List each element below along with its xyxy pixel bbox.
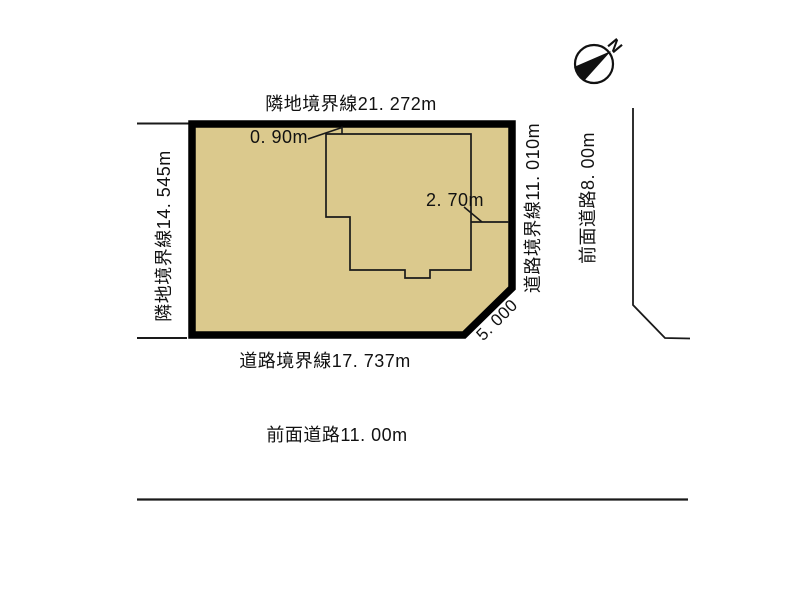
bottom-front-road-label: 前面道路11. 00m	[266, 426, 407, 444]
left-boundary-label: 隣地境界線14. 545m	[155, 150, 173, 322]
top-boundary-label: 隣地境界線21. 272m	[265, 95, 437, 113]
site-plan-canvas: 隣地境界線21. 272m 隣地境界線14. 545m 道路境界線11. 010…	[0, 0, 800, 596]
bottom-boundary-label: 道路境界線17. 737m	[239, 352, 411, 370]
top-gap-label: 0. 90m	[250, 128, 308, 146]
road-edge-line	[633, 108, 690, 339]
right-gap-label: 2. 70m	[426, 191, 484, 209]
plot-outline	[192, 124, 512, 335]
right-boundary-label: 道路境界線11. 010m	[524, 123, 542, 293]
right-front-road-text: 前面道路8. 00m	[578, 132, 598, 264]
site-plan-svg	[0, 0, 800, 596]
right-front-road-label: 前面道路8. 00m	[579, 132, 597, 264]
